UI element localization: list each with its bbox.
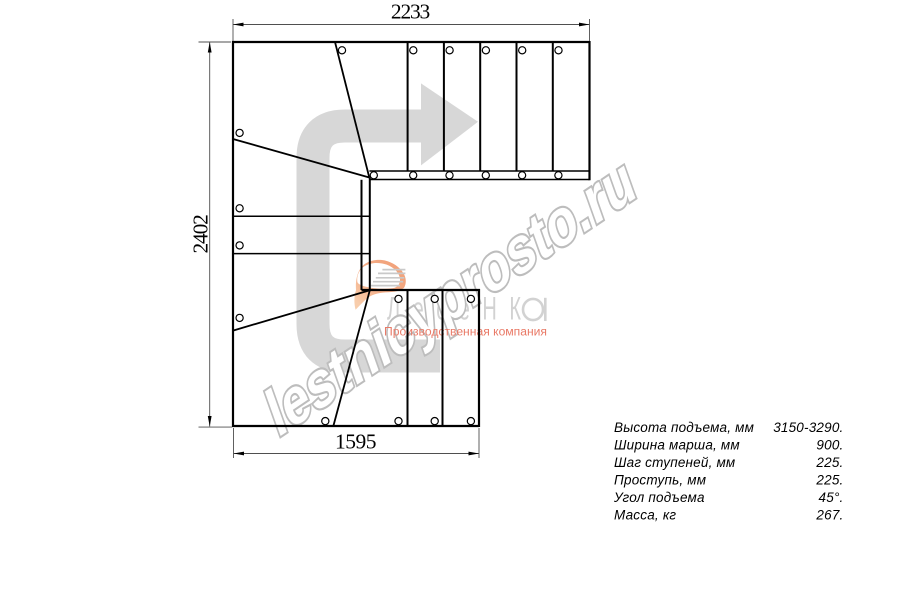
- svg-text:3150-3290.: 3150-3290.: [773, 420, 843, 435]
- svg-text:45°.: 45°.: [819, 490, 844, 505]
- svg-text:225.: 225.: [815, 455, 843, 470]
- svg-text:900.: 900.: [816, 438, 843, 453]
- svg-text:Шаг ступеней, мм: Шаг ступеней, мм: [614, 455, 735, 470]
- svg-text:2402: 2402: [189, 215, 213, 254]
- svg-text:Ширина марша, мм: Ширина марша, мм: [614, 438, 740, 453]
- svg-text:Масса, кг: Масса, кг: [614, 508, 676, 523]
- svg-text:2233: 2233: [391, 0, 430, 24]
- svg-text:Проступь, мм: Проступь, мм: [614, 473, 706, 488]
- svg-text:Угол подъема: Угол подъема: [613, 490, 705, 505]
- svg-text:Высота подъема, мм: Высота подъема, мм: [614, 420, 754, 435]
- svg-text:1595: 1595: [335, 429, 376, 453]
- svg-text:267.: 267.: [815, 508, 843, 523]
- svg-text:225.: 225.: [815, 473, 843, 488]
